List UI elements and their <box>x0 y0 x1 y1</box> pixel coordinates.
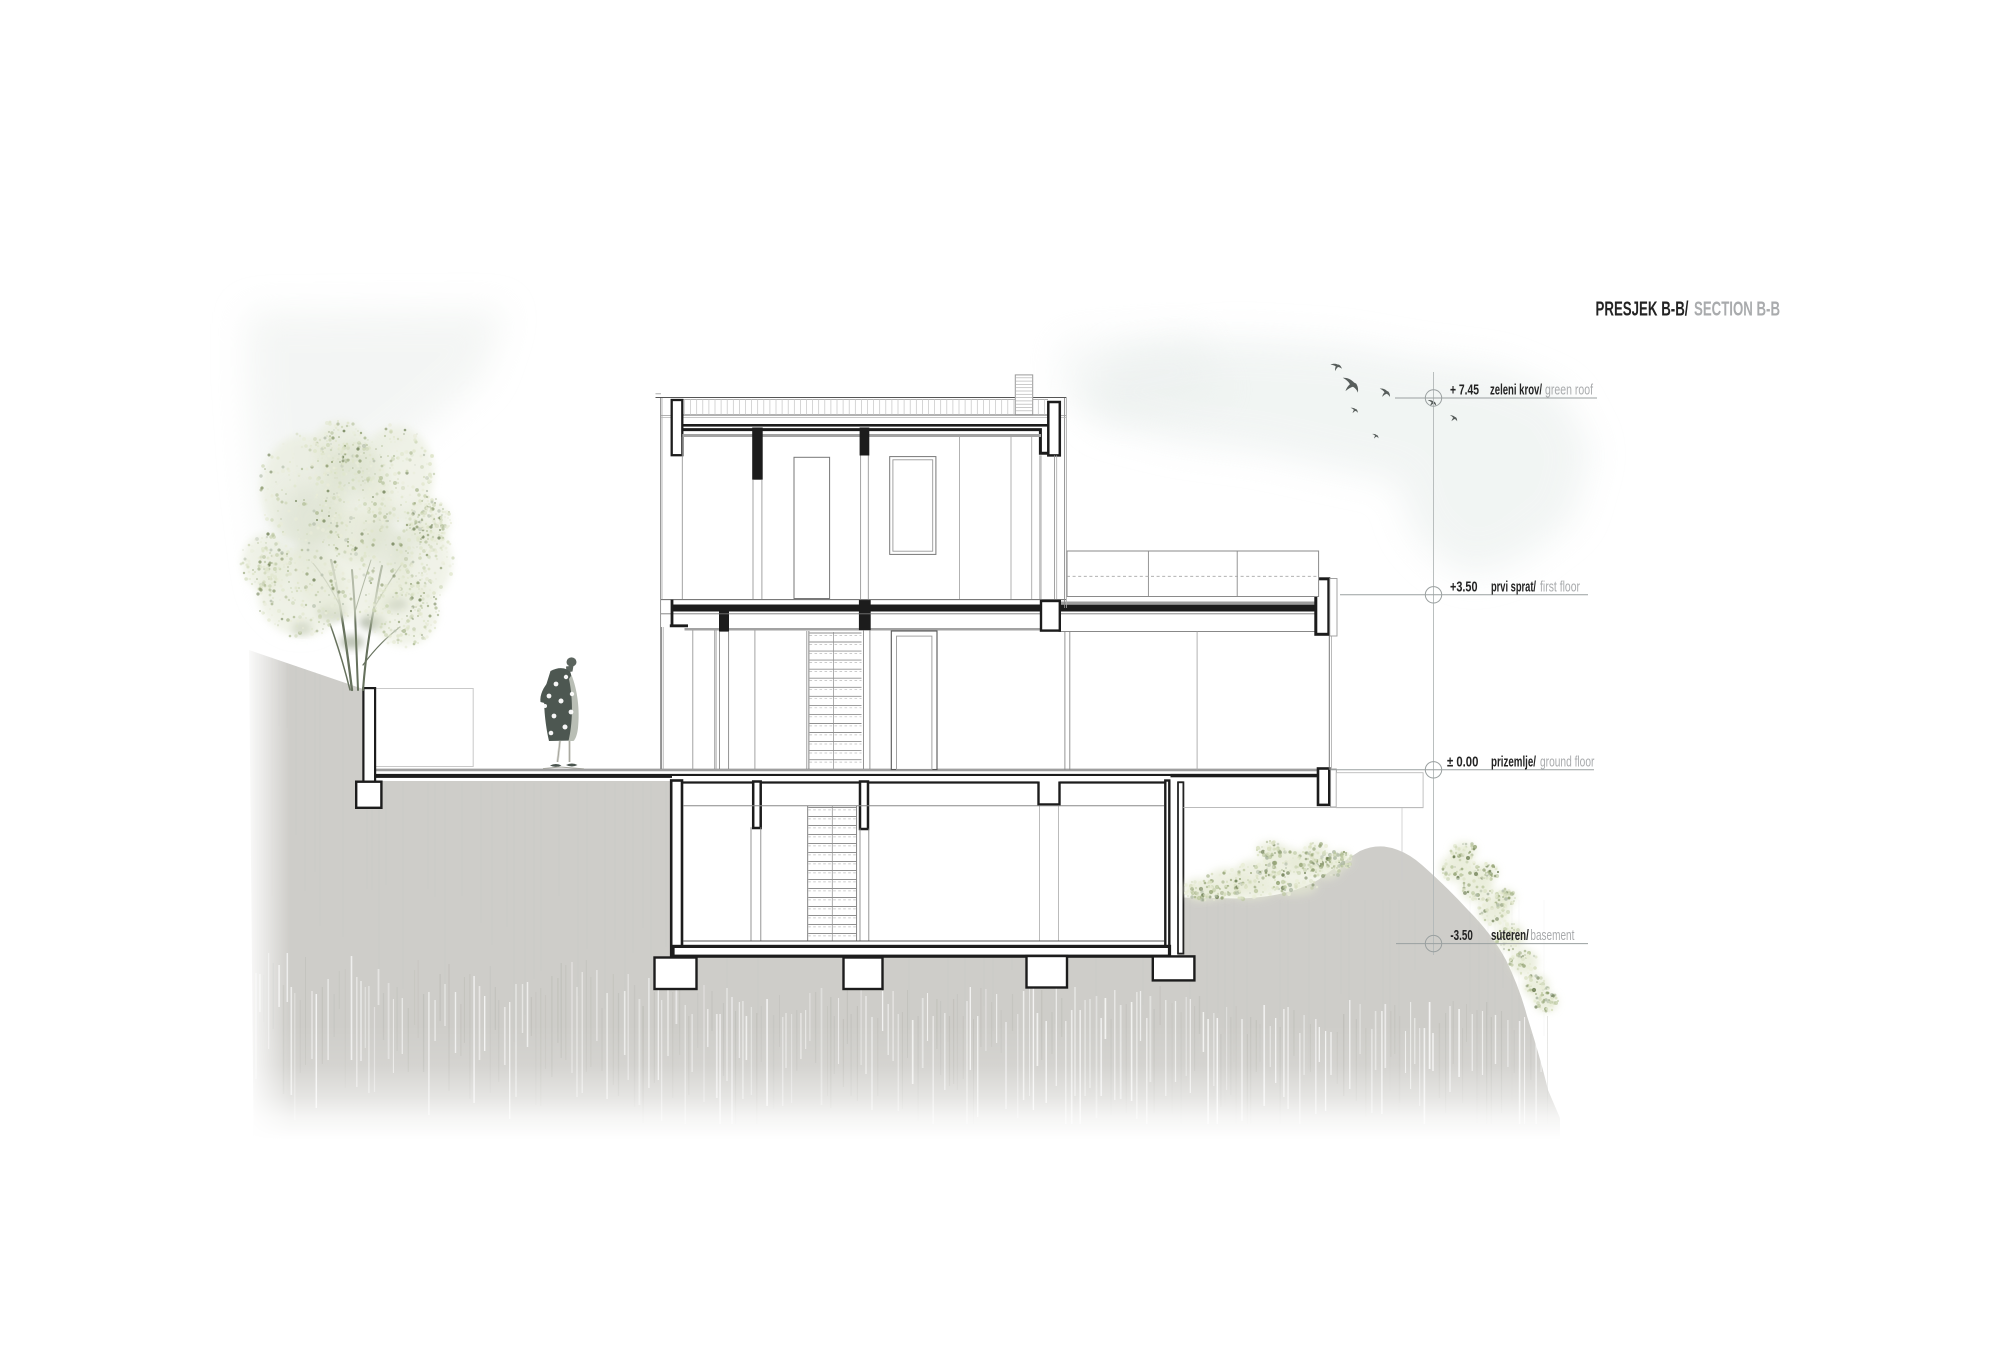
svg-text:suteren/: suteren/ <box>1491 928 1529 944</box>
svg-text:zeleni krov/: zeleni krov/ <box>1490 383 1542 399</box>
svg-text:PRESJEK B-B/: PRESJEK B-B/ <box>1596 299 1689 321</box>
svg-text:+3.50: +3.50 <box>1450 579 1478 595</box>
svg-text:prvi sprat/: prvi sprat/ <box>1491 579 1536 595</box>
svg-text:prizemlje/: prizemlje/ <box>1491 754 1536 770</box>
svg-text:-3.50: -3.50 <box>1450 928 1472 944</box>
svg-text:basement: basement <box>1530 928 1574 944</box>
svg-text:± 0.00: ± 0.00 <box>1447 754 1478 770</box>
svg-text:+ 7.45: + 7.45 <box>1450 383 1479 399</box>
svg-text:ground floor: ground floor <box>1540 754 1595 770</box>
svg-text:SECTION B-B: SECTION B-B <box>1694 299 1780 321</box>
svg-text:first floor: first floor <box>1540 579 1580 595</box>
svg-text:green roof: green roof <box>1545 383 1594 399</box>
